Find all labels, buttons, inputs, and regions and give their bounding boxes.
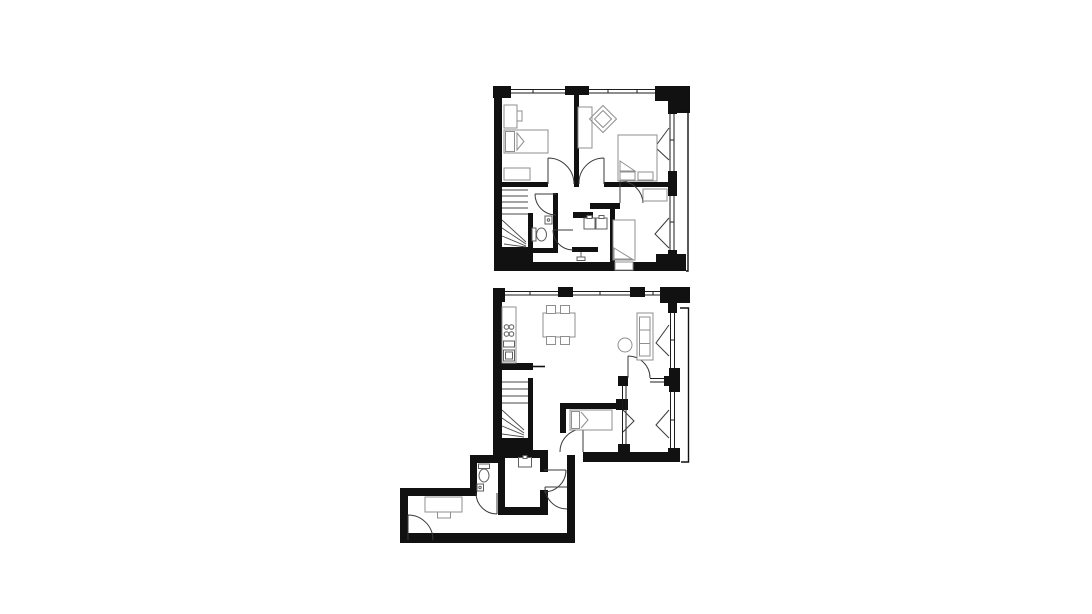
armchair-icon [590,106,617,133]
desk-icon [504,105,517,128]
chair-icon [517,111,522,121]
casement-mark [655,218,669,248]
wall-hall [604,182,668,187]
lower-staircase-icon [502,382,528,437]
wall-pier [558,287,573,297]
wall-hall-right [567,455,575,535]
wall-wc [528,248,558,253]
wall-right-pier [668,86,677,114]
toilet-icon [532,228,536,241]
sink-icon [596,218,607,229]
single-bed-icon [504,130,548,153]
wall-wc-top [470,455,500,463]
wall-corner [668,448,680,462]
wall-seg [533,450,548,458]
door-bedroom-right [579,158,604,184]
chair-icon [547,337,556,345]
hand-basin-icon [477,484,484,491]
door-storage [544,470,566,492]
wall-wc [553,193,558,253]
wall-storage-right [540,490,548,515]
door-wc [535,194,556,215]
door-bedroom-left [548,158,574,184]
floor-plan-drawing [0,0,1092,614]
floor-plan-canvas [0,0,1092,614]
chair-icon [547,306,556,314]
wall-bottom [583,452,680,462]
wall-pier [630,287,645,297]
casement-mark [623,410,634,432]
wall-right-pier [668,287,677,313]
upper-staircase-icon [502,190,528,247]
wall-kitchen [502,363,533,370]
shelf-icon [643,189,667,201]
chair-icon [561,337,570,345]
wall-corner [675,86,690,113]
toilet-icon [479,469,489,482]
door-wc [476,493,497,514]
toilet-icon [479,464,490,469]
wall-right-pier [668,250,677,271]
foot-dresser-icon [615,262,633,270]
single-bed-icon [570,410,612,430]
shower-icon [577,257,585,261]
facade-outline [677,111,688,271]
wall-bedroom-left [560,403,566,433]
door-hall [545,487,567,509]
armchair-icon [595,111,612,128]
wall-pier [618,376,628,386]
sink-icon [584,218,595,229]
dining-table-icon [543,313,575,337]
wall-bath [590,203,620,209]
wall-bottom-outer [400,533,575,543]
wall-storage-left [498,457,505,513]
desk-icon [425,497,462,512]
round-table-icon [618,338,632,352]
tap-icon [587,216,592,219]
wall-shower [572,247,598,252]
lower-floor-plan [400,287,690,543]
upper-windows [511,90,688,272]
casement-mark [656,325,669,356]
wall-left [494,86,502,271]
chair-icon [438,512,451,518]
wall-left-outer [400,490,408,543]
wall-stair-side [528,378,533,438]
hand-basin-icon [545,216,552,224]
dresser-icon [504,168,530,180]
wall-left [493,290,502,458]
lower-kitchen [502,307,516,363]
wall-corridor-top [400,488,472,496]
casement-mark [656,410,669,438]
facade-outline [680,308,689,462]
wall-bedroom-top [560,403,622,409]
chair-icon [561,306,570,314]
wardrobe-icon [578,107,592,148]
wall-loggia-pier [618,444,630,454]
wall-right-pier [668,171,677,196]
lower-furniture [425,306,653,519]
toilet-icon [537,228,547,241]
wall-hall [502,182,548,187]
wall-right-pier [669,368,680,392]
upper-floor-plan [493,86,690,271]
upper-fixtures [532,216,607,261]
tap-icon [523,456,527,459]
tap-icon [599,216,604,219]
